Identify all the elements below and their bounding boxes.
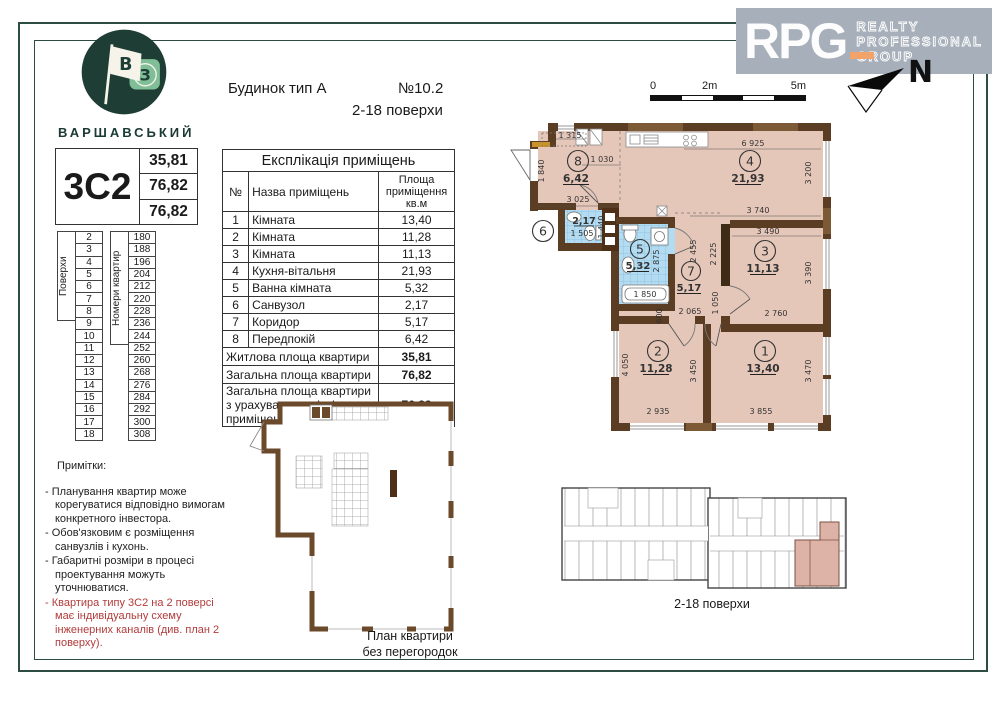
floor-overview-plan — [558, 482, 850, 596]
apt-number-cell: 212 — [128, 280, 156, 293]
svg-text:2 455: 2 455 — [689, 240, 698, 263]
svg-text:3 855: 3 855 — [750, 407, 773, 416]
explication-row: 2Кімната11,28 — [223, 229, 455, 246]
scale-5m: 5m — [791, 80, 806, 92]
overview-caption: 2-18 поверхи — [637, 597, 787, 611]
svg-text:7: 7 — [687, 264, 695, 279]
explication-title: Експлікація приміщень — [223, 150, 455, 172]
explication-row: 7Коридор5,17 — [223, 314, 455, 331]
note-item: - Планування квартир може корегуватися в… — [45, 486, 229, 527]
svg-text:3 025: 3 025 — [567, 195, 590, 204]
apt-number-cell: 284 — [128, 391, 156, 404]
svg-text:3 390: 3 390 — [804, 262, 813, 285]
scale-bar: 0 2m 5m — [650, 80, 806, 102]
floor-cell: 3 — [75, 243, 103, 256]
svg-text:2 225: 2 225 — [709, 243, 718, 266]
col-header-name: Назва приміщень — [249, 172, 379, 212]
col-header-no: № — [223, 172, 249, 212]
svg-text:2 875: 2 875 — [652, 250, 661, 273]
svg-text:1 050: 1 050 — [711, 292, 720, 315]
explication-row: 3Кімната11,13 — [223, 246, 455, 263]
explication-table: Експлікація приміщень № Назва приміщень … — [222, 149, 455, 427]
apartment-numbers-column: Номери квартир 180 188 196 204 212 220 2… — [110, 231, 156, 441]
floor-cell: 8 — [75, 305, 103, 318]
svg-text:1 505: 1 505 — [571, 229, 594, 238]
apartment-type-block: 3С2 35,81 76,82 76,82 — [55, 148, 198, 225]
apt-number-cell: 244 — [128, 329, 156, 342]
floors-label: Поверхи — [57, 231, 76, 321]
svg-text:1 850: 1 850 — [634, 290, 657, 299]
explication-row: 4Кухня-вітальня21,93 — [223, 263, 455, 280]
floor-cell: 11 — [75, 342, 103, 355]
svg-text:3 470: 3 470 — [804, 360, 813, 383]
flag-letter-z: З — [140, 65, 151, 84]
floor-cell: 15 — [75, 391, 103, 404]
apt-number-cell: 236 — [128, 317, 156, 330]
svg-text:8: 8 — [574, 154, 582, 169]
apt-number-cell: 300 — [128, 415, 156, 428]
apt-number-cell: 196 — [128, 256, 156, 269]
svg-text:3: 3 — [761, 244, 769, 259]
svg-text:11,28: 11,28 — [639, 363, 672, 375]
floors-range-title: 2-18 поверхи — [352, 102, 443, 119]
floor-cell: 12 — [75, 354, 103, 367]
floor-cell: 4 — [75, 256, 103, 269]
floors-numbers-table: Поверхи 2 3 4 5 6 7 8 9 10 11 12 13 14 1… — [57, 231, 156, 441]
svg-text:3 200: 3 200 — [804, 162, 813, 185]
apt-number-cell: 260 — [128, 354, 156, 367]
summary-row: Загальна площа квартири76,82 — [223, 366, 455, 384]
living-area: 35,81 — [140, 149, 197, 174]
svg-text:5,32: 5,32 — [626, 261, 651, 272]
svg-text:2 935: 2 935 — [647, 407, 670, 416]
floor-cell: 2 — [75, 231, 103, 244]
svg-text:5,17: 5,17 — [677, 283, 702, 294]
brand-name: ВАРШАВСЬКИЙ — [58, 125, 190, 140]
explication-row: 8Передпокій6,42 — [223, 331, 455, 348]
svg-text:1 840: 1 840 — [537, 160, 546, 183]
floor-cell: 17 — [75, 415, 103, 428]
floor-cell: 14 — [75, 379, 103, 392]
col-header-area: Площа приміщення кв.м — [379, 172, 455, 212]
svg-text:6: 6 — [539, 224, 547, 239]
apartment-type: 3С2 — [56, 149, 140, 224]
scale-2m: 2m — [702, 80, 717, 92]
note-item: - Габаритні розміри в процесі проектуван… — [45, 555, 229, 596]
explication-row: 6Санвузол2,17 — [223, 297, 455, 314]
explication-row: 5Ванна кімната5,32 — [223, 280, 455, 297]
explication-row: 1Кімната13,40 — [223, 212, 455, 229]
svg-text:4 050: 4 050 — [621, 354, 630, 377]
svg-text:2 065: 2 065 — [679, 307, 702, 316]
apt-number-cell: 188 — [128, 243, 156, 256]
svg-text:11,13: 11,13 — [746, 263, 779, 275]
scale-0: 0 — [650, 80, 656, 92]
svg-text:2 760: 2 760 — [765, 309, 788, 318]
floor-cell: 7 — [75, 292, 103, 305]
scale-bar-segments — [650, 95, 806, 101]
note-item-highlighted: - Квартира типу 3С2 на 2 поверсі має інд… — [45, 597, 229, 651]
apt-number-cell: 204 — [128, 268, 156, 281]
building-type-title: Будинок тип А — [228, 80, 327, 97]
svg-text:1 440: 1 440 — [597, 216, 606, 239]
svg-text:1: 1 — [761, 344, 769, 359]
svg-text:21,93: 21,93 — [731, 173, 764, 185]
plan-number: №10.2 — [398, 80, 443, 97]
apt-number-cell: 292 — [128, 403, 156, 416]
svg-text:6 925: 6 925 — [742, 139, 765, 148]
svg-text:5: 5 — [636, 242, 644, 257]
no-partitions-caption: План квартири без перегородок — [330, 628, 490, 660]
svg-text:1 030: 1 030 — [591, 155, 614, 164]
svg-text:3 740: 3 740 — [747, 206, 770, 215]
flag-letter-b: В — [119, 55, 132, 75]
note-item: - Обов'язковим є розміщення санвузлів і … — [45, 527, 229, 554]
total-area: 76,82 — [140, 174, 197, 199]
svg-text:2,17: 2,17 — [572, 216, 595, 227]
notes: Примітки: - Планування квартир може коре… — [45, 460, 229, 652]
svg-text:1 315: 1 315 — [559, 131, 582, 140]
total-area-summer: 76,82 — [140, 200, 197, 224]
apt-number-cell: 268 — [128, 366, 156, 379]
apartment-numbers-label: Номери квартир — [110, 231, 129, 345]
developer-logo: З В ВАРШАВСЬКИЙ — [58, 26, 190, 140]
svg-text:600: 600 — [655, 308, 664, 323]
floor-cell: 6 — [75, 280, 103, 293]
floor-cell: 13 — [75, 366, 103, 379]
floor-cell: 16 — [75, 403, 103, 416]
svg-text:6,42: 6,42 — [563, 173, 589, 185]
svg-text:3 450: 3 450 — [689, 360, 698, 383]
svg-text:3 490: 3 490 — [757, 227, 780, 236]
plan-no-partitions — [248, 396, 463, 644]
washing-machine — [651, 228, 668, 245]
floor-cell: 18 — [75, 428, 103, 441]
plan-sheet: З В ВАРШАВСЬКИЙ Будинок тип А №10.2 2-18… — [0, 0, 1000, 707]
apt-number-cell: 252 — [128, 342, 156, 355]
summary-row: Житлова площа квартири35,81 — [223, 348, 455, 366]
apt-number-cell: 180 — [128, 231, 156, 244]
apt-number-cell: 220 — [128, 292, 156, 305]
svg-text:4: 4 — [746, 154, 754, 169]
north-arrow-icon: N — [846, 46, 938, 112]
floor-cell: 5 — [75, 268, 103, 281]
floor-cell: 9 — [75, 317, 103, 330]
notes-title: Примітки: — [57, 460, 229, 474]
apt-number-cell: 228 — [128, 305, 156, 318]
svg-text:13,40: 13,40 — [746, 363, 779, 375]
north-letter: N — [908, 55, 933, 90]
apt-number-cell: 308 — [128, 428, 156, 441]
flag-logo-icon: З В — [78, 26, 170, 118]
floor-cell: 10 — [75, 329, 103, 342]
apt-number-cell: 276 — [128, 379, 156, 392]
svg-text:2: 2 — [654, 344, 662, 359]
floors-column: Поверхи 2 3 4 5 6 7 8 9 10 11 12 13 14 1… — [57, 231, 103, 441]
rpg-acronym: RPG — [744, 16, 846, 66]
main-floor-plan: 1 13,40 2 11,28 3 11,13 4 21,93 5 5,32 6… — [518, 113, 850, 447]
